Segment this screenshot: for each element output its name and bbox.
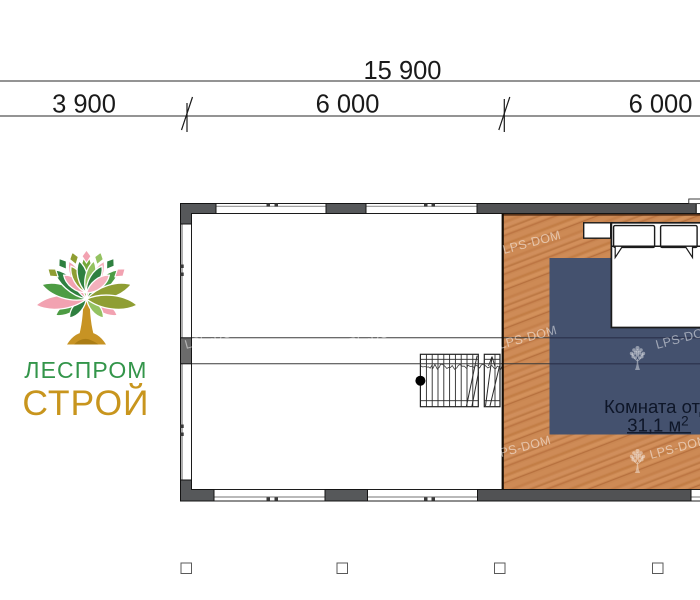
svg-text:6 000: 6 000 (316, 91, 380, 119)
svg-text:3 900: 3 900 (52, 91, 116, 119)
svg-text:ЛЕСПРОМ: ЛЕСПРОМ (24, 357, 147, 383)
svg-text:СТРОЙ: СТРОЙ (22, 383, 149, 423)
svg-text:31,1 м2: 31,1 м2 (627, 413, 688, 435)
svg-text:6 000: 6 000 (629, 91, 693, 119)
svg-text:15 900: 15 900 (364, 57, 442, 85)
